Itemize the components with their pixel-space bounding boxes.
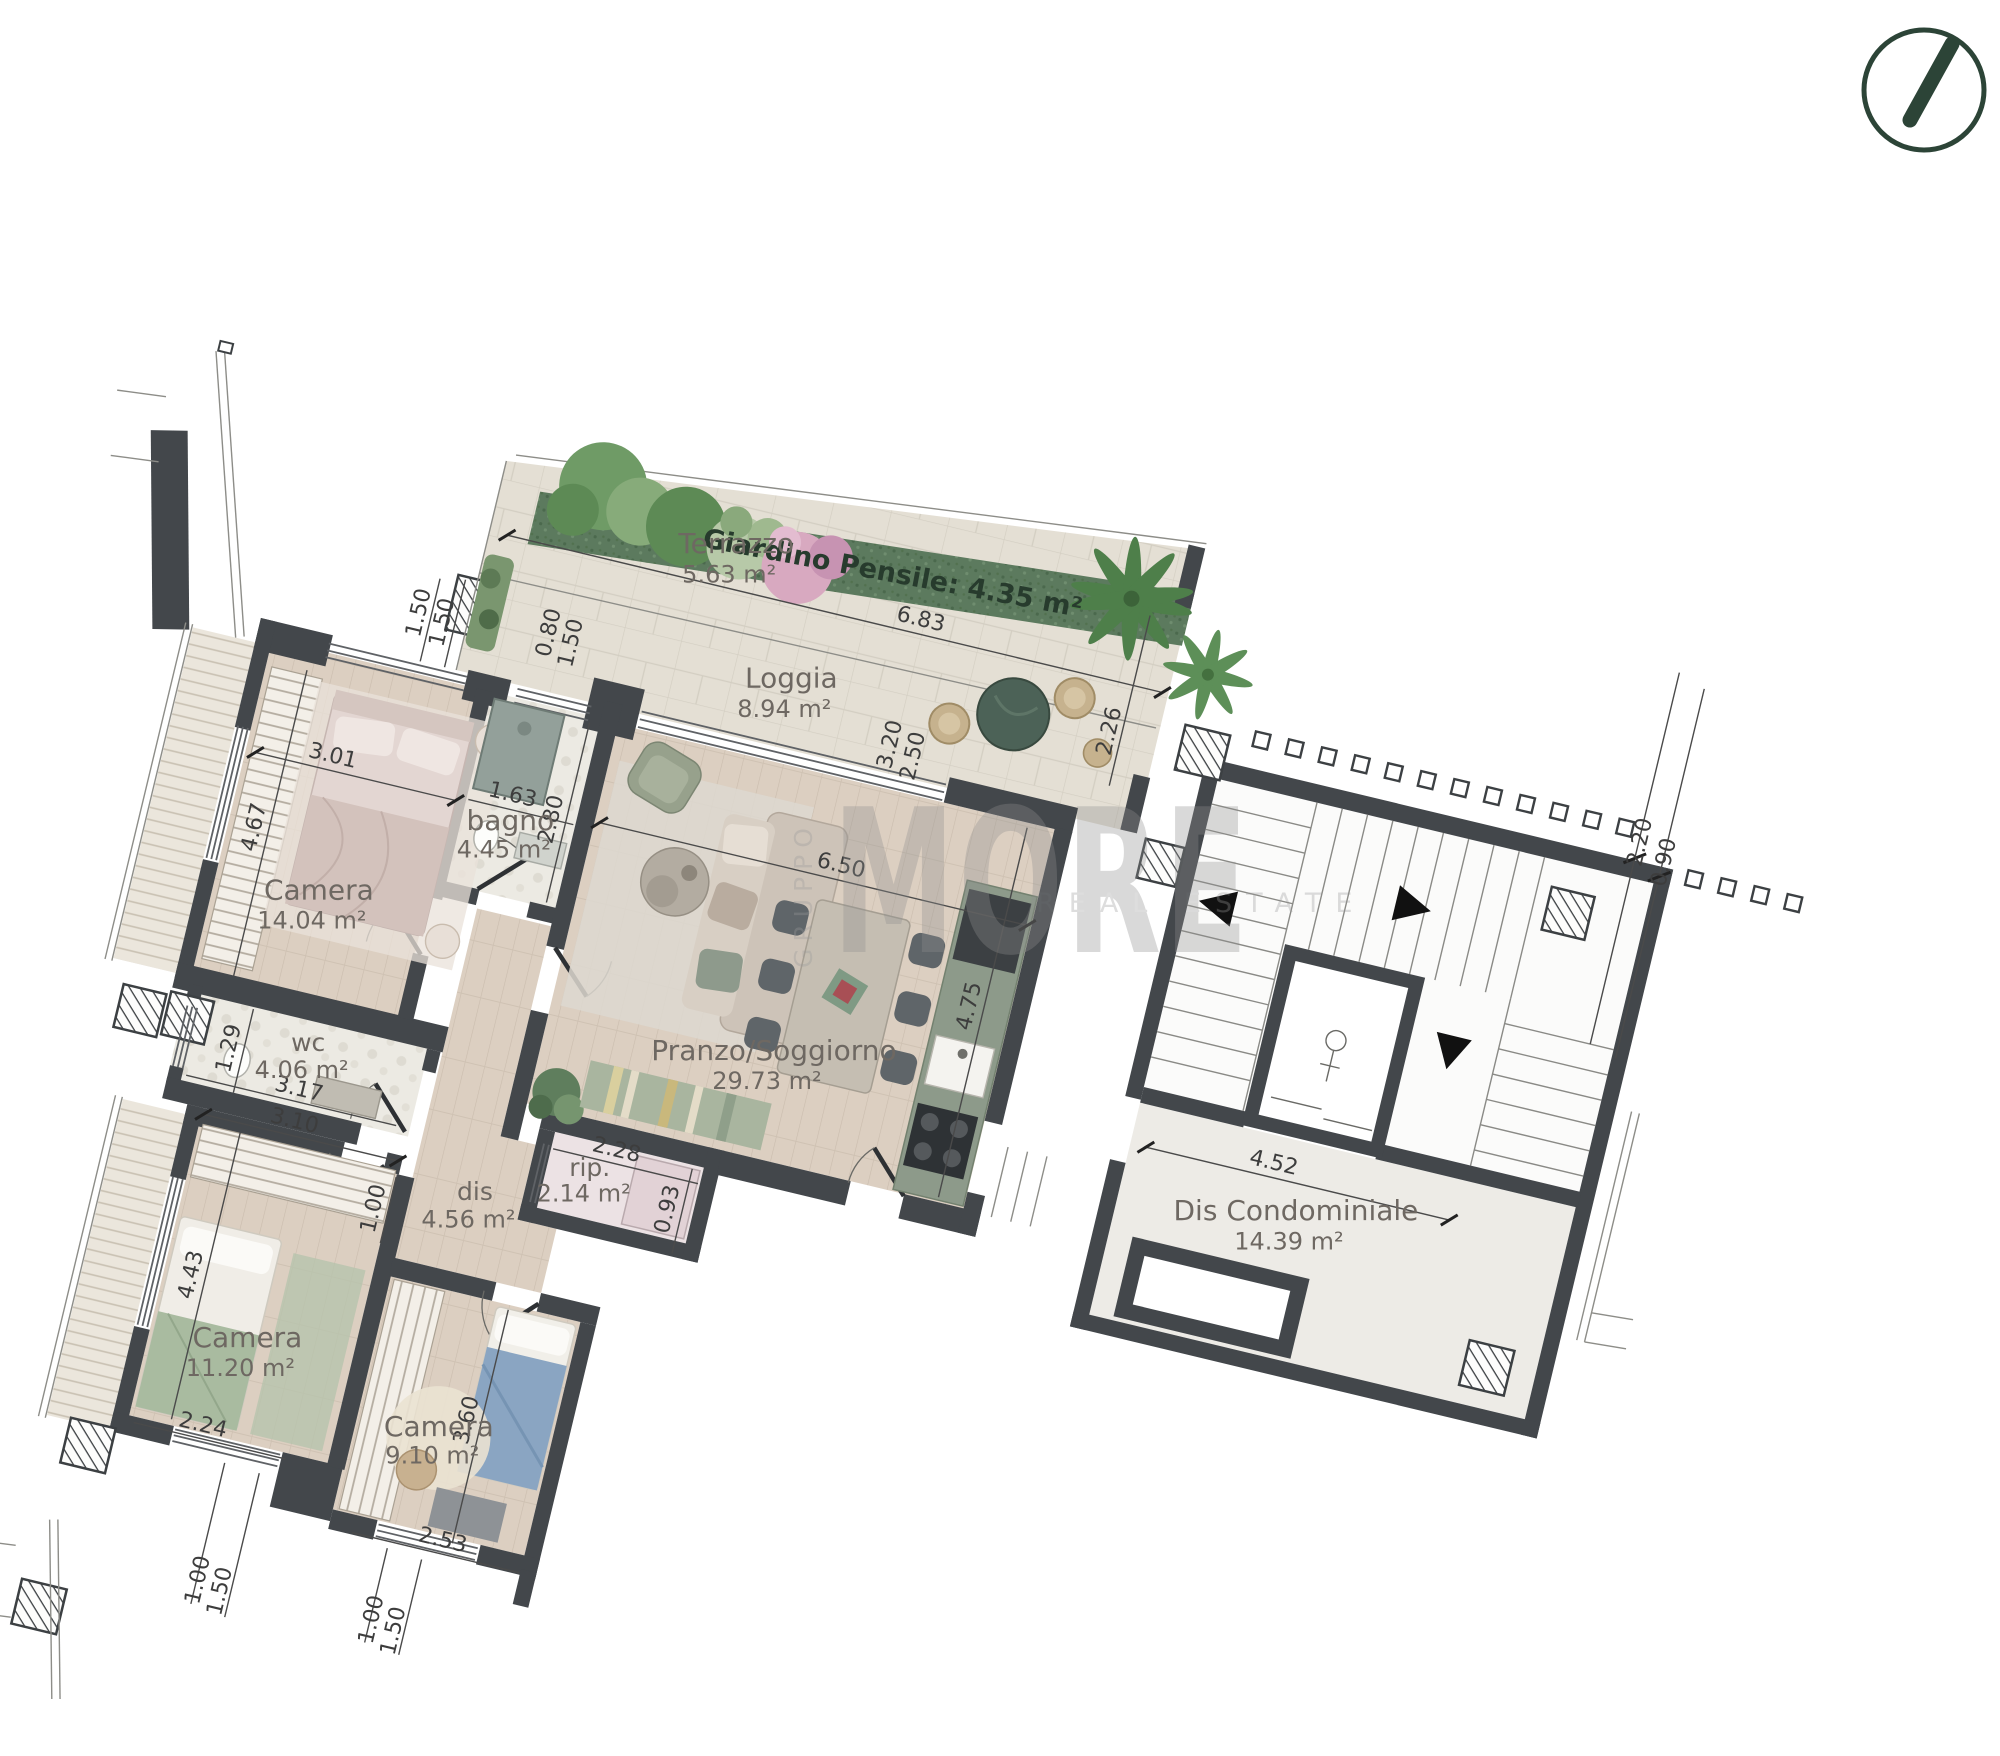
threshold [1011,1152,1028,1222]
room-area: 5.63 m² [682,560,776,588]
room-area: 14.04 m² [257,906,366,934]
watermark-brand: MORE [832,768,1251,1000]
room-area: 29.73 m² [712,1067,821,1095]
room-area: 11.20 m² [186,1354,295,1382]
pillar-hatched [161,991,214,1044]
room-area: 4.06 m² [255,1056,349,1084]
room-label: Terrazzo [677,527,794,560]
room-label: Camera [264,873,374,906]
rotated-plan-group: 6.83 3.01 4.67 1.63 2.80 1.50 1.50 0.80 … [0,288,1850,1756]
room-label: dis [457,1177,493,1206]
pillar-hatched [113,984,166,1037]
room-label: rip. [569,1153,610,1182]
watermark-tagline: REAL ESTATE [1036,888,1366,919]
room-area: 14.39 m² [1234,1227,1343,1255]
floor-plan-page: 6.83 3.01 4.67 1.63 2.80 1.50 1.50 0.80 … [0,0,2000,1756]
pillar-hatched [60,1418,115,1473]
threshold [991,1147,1008,1217]
floor-plan-image: 6.83 3.01 4.67 1.63 2.80 1.50 1.50 0.80 … [0,0,2000,1756]
neighbor-wall [106,422,235,637]
room-label: Loggia [745,662,838,695]
room-label: Pranzo/Soggiorno [651,1034,896,1067]
threshold [1030,1156,1047,1226]
room-label: Camera [384,1410,494,1443]
room-label: wc [291,1028,325,1057]
room-area: 4.45 m² [457,835,551,863]
room-area: 4.56 m² [421,1205,515,1233]
wall [513,1569,537,1608]
room-label: Dis Condominiale [1173,1194,1418,1227]
room-label: bagno [467,804,555,837]
room-area: 8.94 m² [737,695,831,723]
room-label: Camera [192,1321,302,1354]
pillar-hatched [1542,887,1595,940]
pillar-hatched [1459,1340,1514,1395]
watermark-group: GRUPPO [789,821,818,968]
room-area: 9.10 m² [385,1441,479,1469]
room-area: 2.14 m² [537,1179,631,1207]
north-compass-icon [1864,30,1984,150]
